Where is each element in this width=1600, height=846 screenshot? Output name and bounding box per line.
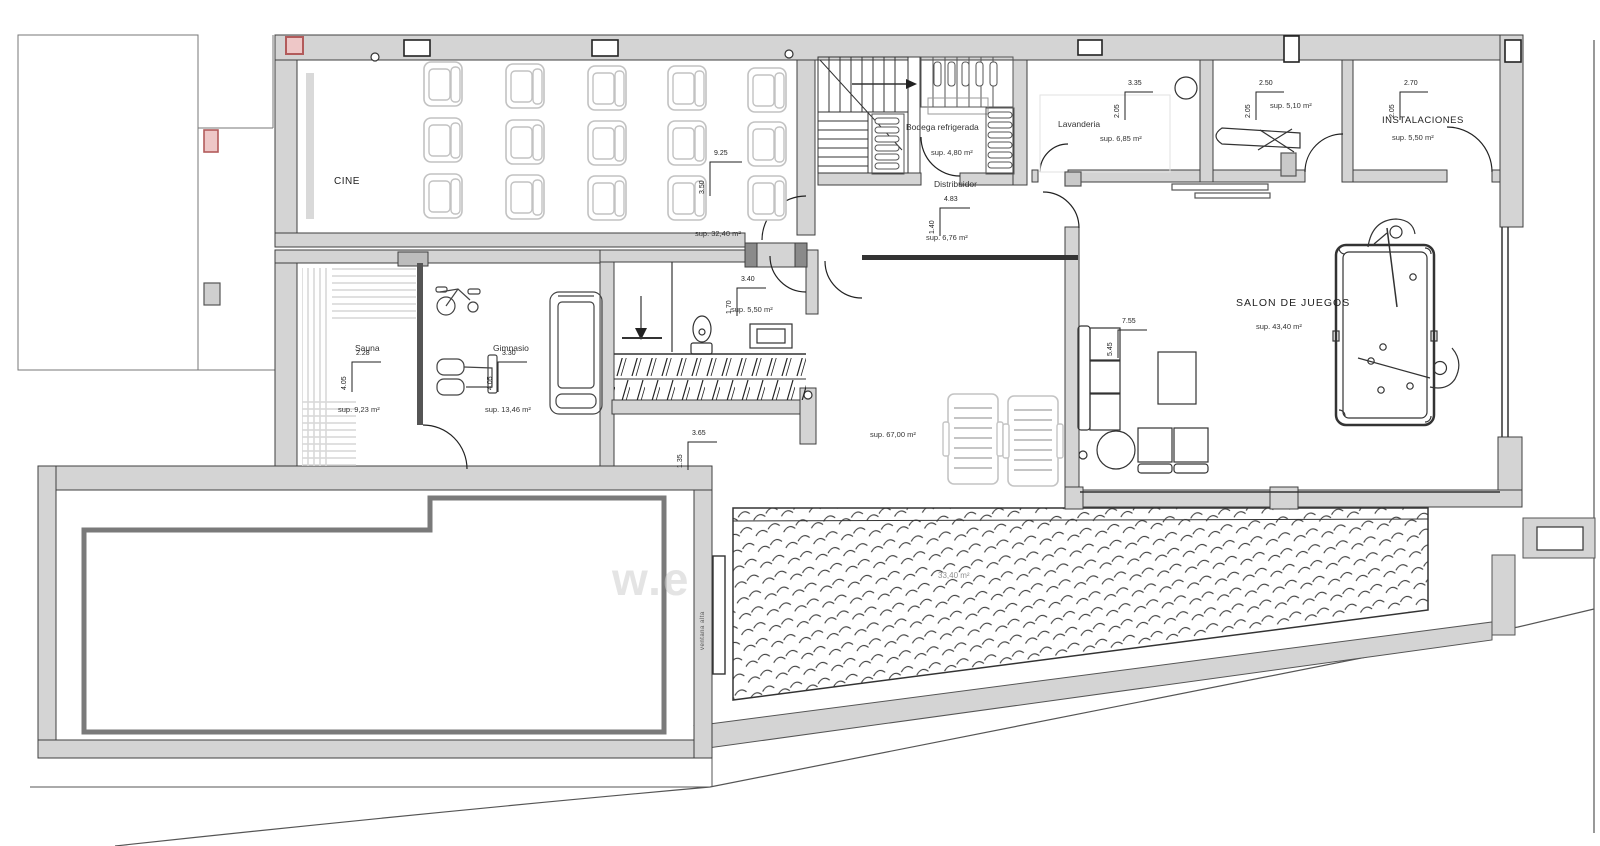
dim-salon-h: 5.45 [1107,342,1114,356]
vent-marker [1078,40,1102,55]
swimming-pool [694,508,1595,748]
dim-aseo-w: 3.40 [741,276,755,283]
billiard-player-top [1368,219,1415,247]
dim-sauna-w: 2.28 [356,350,370,357]
sauna-benches [302,268,416,466]
side-table [1158,352,1196,404]
laundry-sink-icon [1175,77,1197,99]
room-label-distribuidor: Distribuidor [934,179,977,189]
sofa-set [1078,326,1208,473]
area-label-lavanderia: sup. 6,85 m² [1100,134,1142,143]
dim-cine-h: 3.50 [699,180,706,194]
billiard-table [1333,228,1437,425]
area-label-aseo: sup. 5,50 m² [731,305,773,314]
dim-sauna-h: 4.05 [341,376,348,390]
vent-marker [404,40,430,56]
area-label-gimnasio: sup. 13,46 m² [485,405,531,414]
dim-gimnasio-w: 3.30 [502,350,516,357]
area-label-sauna: sup. 9,23 m² [338,405,380,414]
area-label-instalaciones: sup. 5,50 m² [1392,133,1434,142]
round-table [1097,431,1135,469]
toilet-icon [691,316,712,354]
exercise-bike-icon [436,287,480,315]
dim-terraza-w: 3.65 [692,430,706,437]
dim-salon-w: 7.55 [1122,318,1136,325]
red-marker [286,37,303,54]
room-label-cine: CINE [334,176,360,187]
dim-cine-w: 9.25 [714,150,728,157]
vent-marker [592,40,618,56]
cinema-furniture [306,62,786,220]
lower-left-room [38,466,725,758]
dim-lavanderia-w: 3.35 [1128,80,1142,87]
dim-terraza-h: 1.35 [677,454,684,468]
treadmill-icon [550,292,602,414]
dim-distribuidor-w: 4.83 [944,196,958,203]
room-label-bodega: Bodega refrigerada [906,122,979,132]
area-label-plancha: sup. 5,10 m² [1270,101,1312,110]
cue-stick [1387,228,1397,307]
area-label-cine: sup. 32,40 m² [695,229,741,238]
column-marker [1284,36,1299,62]
cinema-screen [306,73,314,219]
room-label-lavanderia: Lavanderia [1058,119,1100,129]
floor-plan-drawing [0,0,1600,846]
games-room-furniture [1078,219,1459,473]
dim-plancha-w: 2.50 [1259,80,1273,87]
red-marker [204,130,218,152]
billiard-player-right [1358,348,1459,388]
area-label-bodega: sup. 4,80 m² [931,148,973,157]
area-label-pool: 33,40 m² [938,571,970,580]
dim-lavanderia-h: 2.05 [1114,104,1121,118]
area-label-salon: sup. 43,40 m² [1256,322,1302,331]
area-label-terraza: sup. 67,00 m² [870,430,916,439]
high-window [713,556,725,674]
dim-plancha-h: 2.05 [1245,104,1252,118]
room-label-salon: SALON DE JUEGOS [1236,297,1350,309]
window-note-label: ventana alta [700,611,706,650]
terrace-loungers [943,394,1063,486]
dim-aseo-h: 1.70 [726,300,733,314]
dim-instalaciones-w: 2.70 [1404,80,1418,87]
dim-instalaciones-h: 2.05 [1389,104,1396,118]
annex-outline [18,35,275,370]
floor-plan-canvas: w.e CINE sup. 32,40 m² 9.25 3.50 Bodega … [0,0,1600,846]
area-label-distribuidor: sup. 6,76 m² [926,233,968,242]
column-marker [1505,40,1521,62]
wardrobe [614,358,806,400]
vanity-sink [750,324,792,348]
staircase [818,57,917,173]
ironing-board-icon [1216,128,1300,176]
watermark: w.e [612,552,690,606]
dim-gimnasio-h: 4.05 [487,376,494,390]
dim-distribuidor-h: 1.40 [929,220,936,234]
